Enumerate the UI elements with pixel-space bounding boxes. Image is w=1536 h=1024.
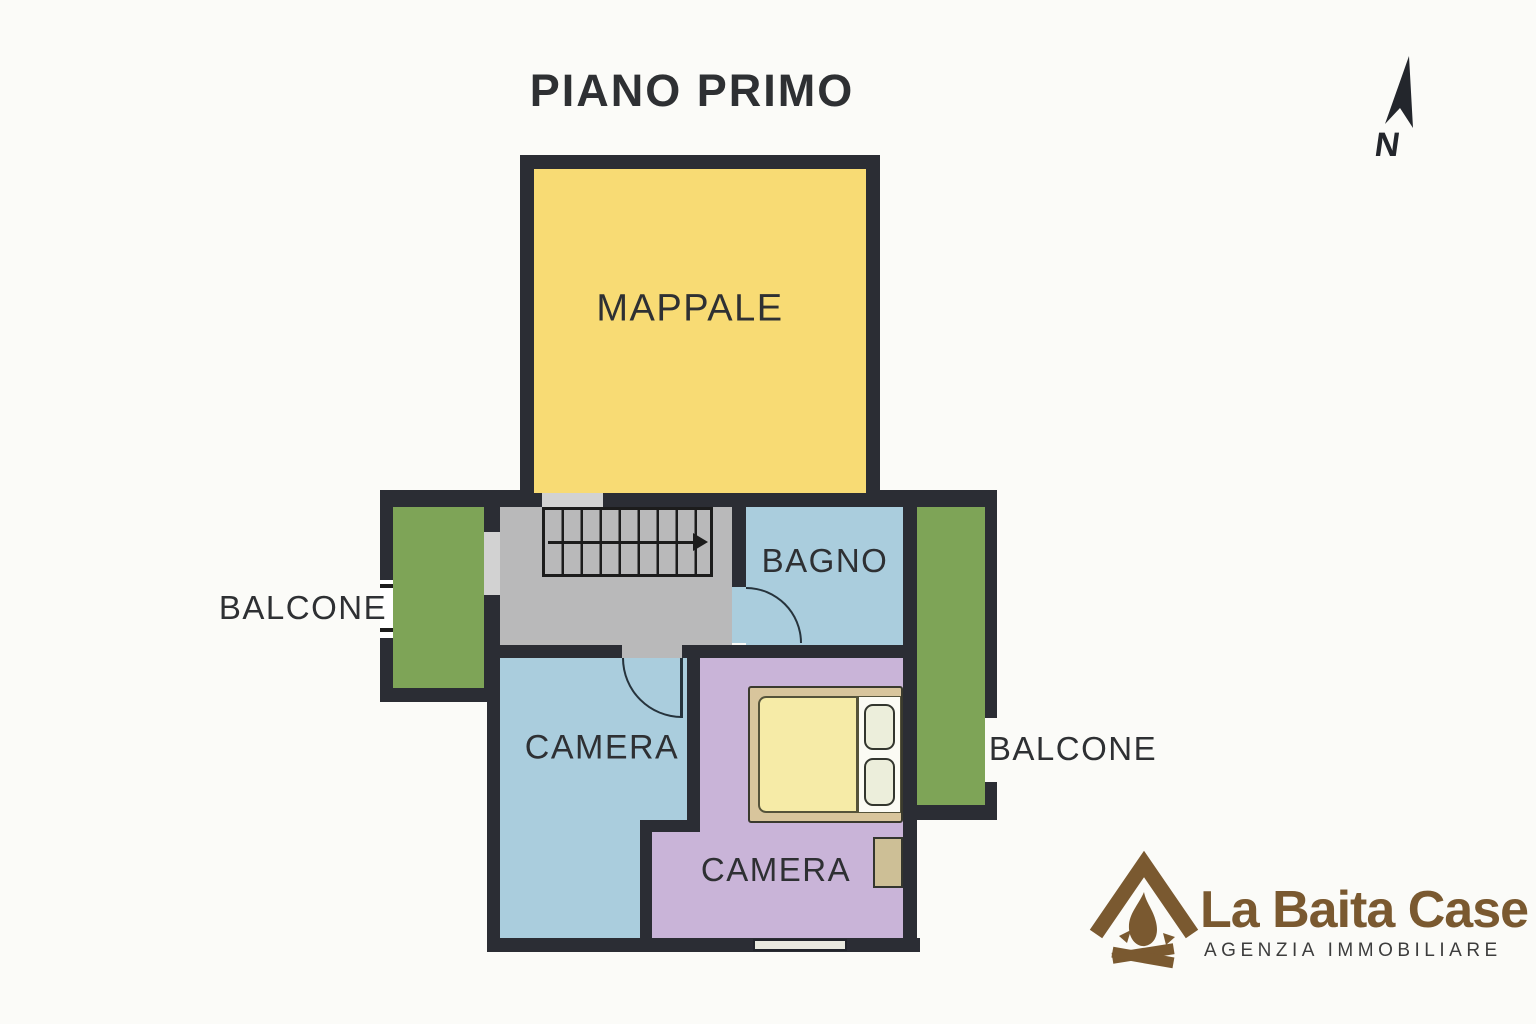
label-balcone-left: BALCONE — [219, 589, 387, 627]
logo-tagline: AGENZIA IMMOBILIARE — [1204, 940, 1502, 962]
wall-balcony-left-bottom — [380, 688, 500, 702]
wall-camera-left-outer — [487, 645, 500, 952]
staircase — [542, 507, 713, 577]
room-mappale — [534, 169, 866, 493]
bed-pillow-bottom — [864, 758, 895, 806]
stair-direction-arrowhead — [693, 533, 708, 551]
page-title: PIANO PRIMO — [530, 65, 855, 117]
bed-mattress — [758, 696, 858, 813]
wall-hall-bottom — [484, 645, 917, 658]
room-camera-left-lower — [500, 820, 640, 938]
wall-camera-divider-upper — [687, 645, 700, 832]
campfire-house-icon — [1088, 850, 1200, 972]
door-leaf-camera-left — [680, 658, 683, 718]
balcony-left-window-tick-top — [380, 584, 393, 588]
north-arrow-icon — [1383, 56, 1417, 130]
wall-right-main — [903, 490, 917, 952]
wall-balcony-right-bottom — [903, 805, 997, 820]
opening-hall-camera-left — [622, 645, 682, 658]
double-bed — [748, 686, 903, 823]
balcony-left-window-tick-bottom — [380, 628, 393, 632]
label-balcone-right: BALCONE — [989, 730, 1157, 768]
bed-pillow-top — [864, 704, 895, 750]
wall-bagno-left — [732, 507, 746, 587]
room-balcone-right — [917, 507, 985, 805]
label-bagno: BAGNO — [762, 542, 889, 580]
camera-right-bottom-window — [753, 939, 847, 951]
room-balcone-left — [393, 507, 484, 688]
wall-balcony-right-outer-upper — [985, 490, 997, 718]
opening-bagno-door — [732, 587, 746, 643]
label-mappale: MAPPALE — [596, 288, 783, 331]
wall-bottom-outer — [487, 938, 920, 952]
threshold-mappale-hall — [542, 493, 603, 507]
threshold-balcony-hall — [484, 532, 500, 595]
logo-name: La Baita Case — [1200, 880, 1528, 940]
floor-plan-canvas: PIANO PRIMO MAPPALE BAGNO BALCONE CAMERA… — [0, 0, 1536, 1024]
label-camera-right: CAMERA — [701, 851, 851, 889]
compass-n-label: N — [1372, 126, 1402, 165]
stair-direction-line — [548, 541, 698, 544]
nightstand — [873, 837, 903, 888]
label-camera-left: CAMERA — [525, 729, 679, 768]
wall-camera-divider-lower — [640, 820, 652, 952]
